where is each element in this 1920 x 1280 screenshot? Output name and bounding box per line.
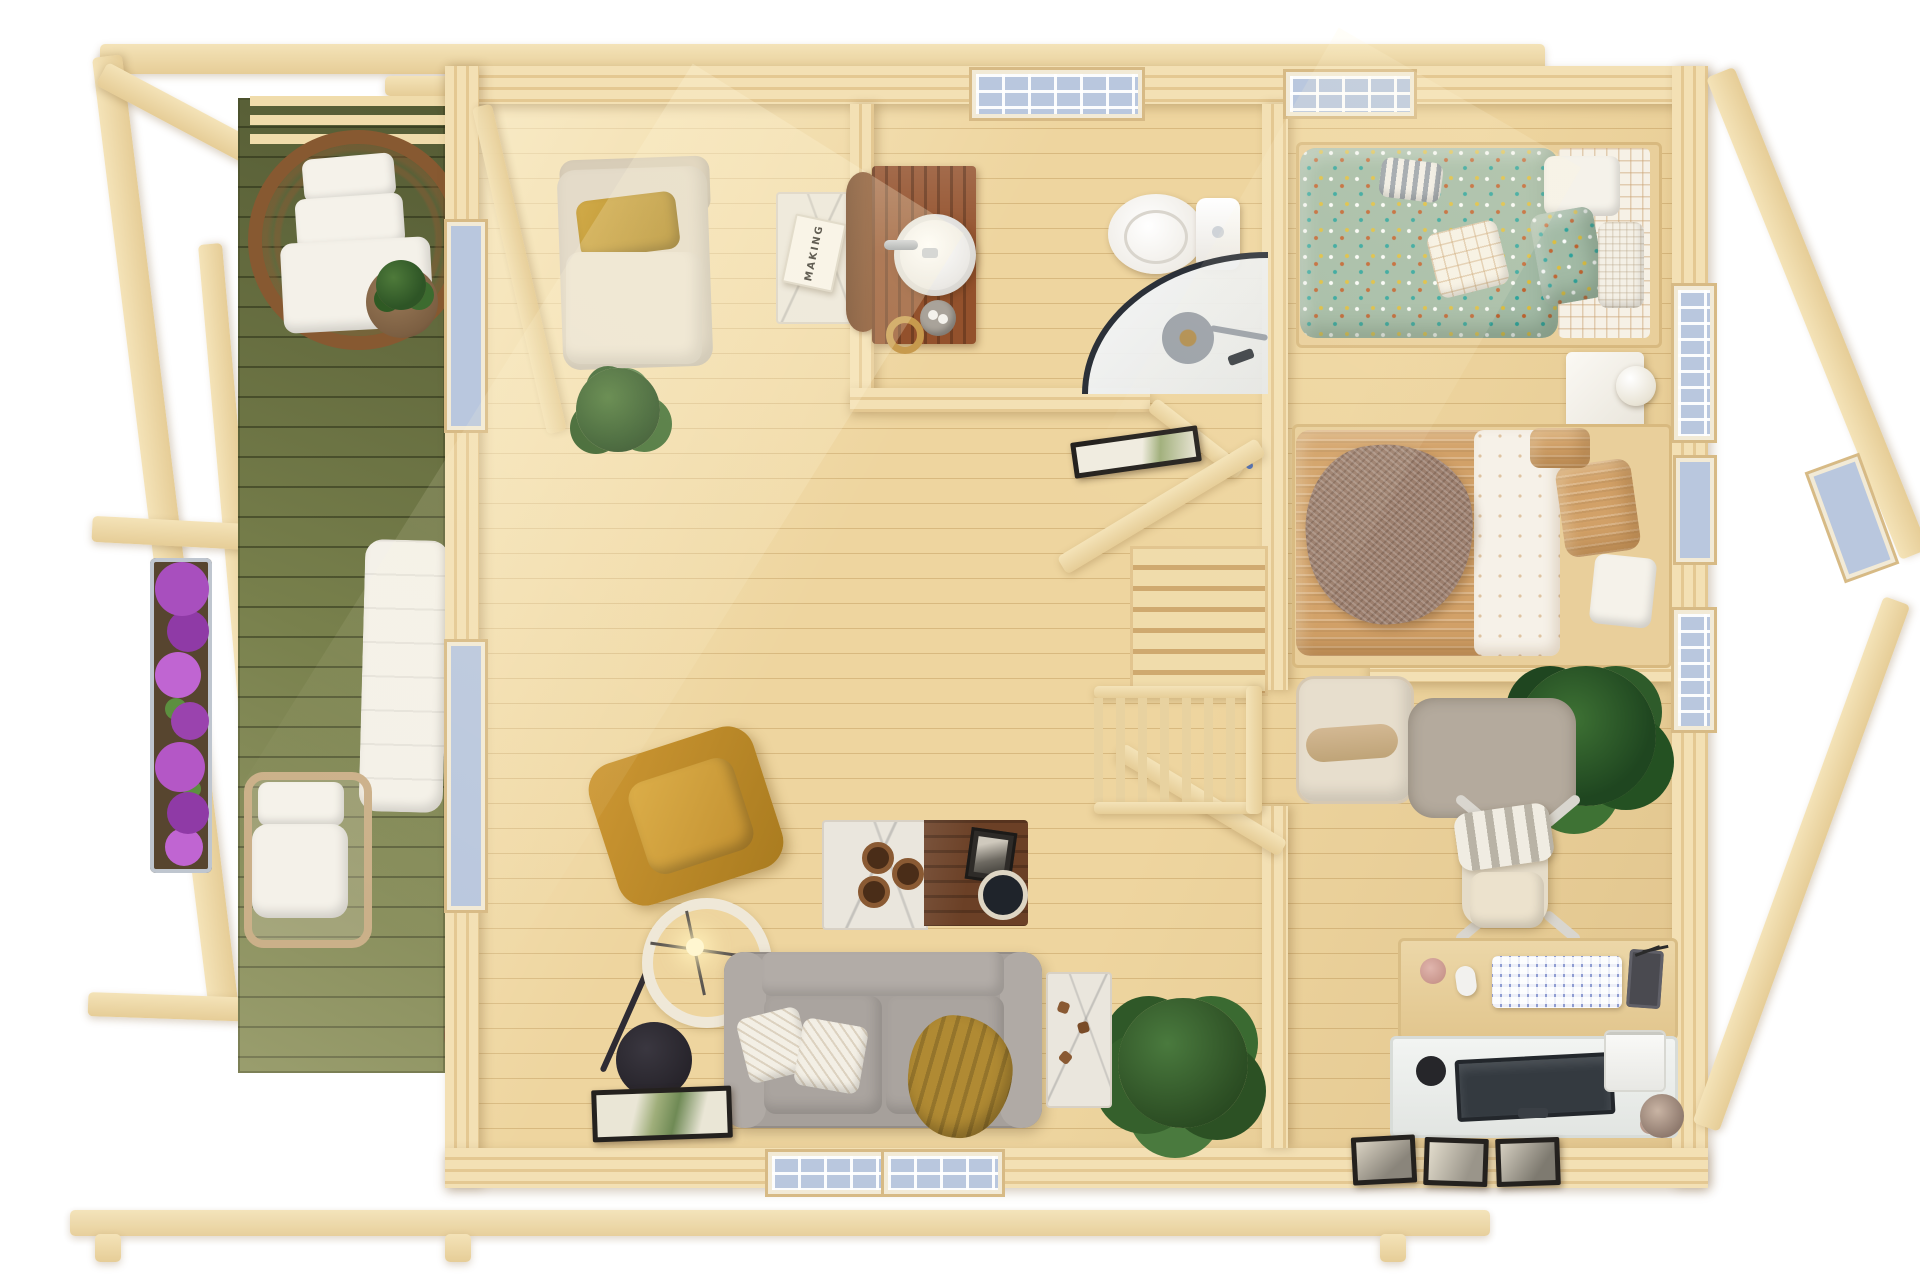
living-plant	[576, 368, 660, 452]
right-wall-window-1	[1674, 286, 1714, 440]
flush-button	[1212, 226, 1224, 238]
monitor-stand	[1518, 1108, 1548, 1118]
stair-newel-post	[1246, 686, 1262, 814]
central-wall-lower	[1262, 806, 1288, 1148]
bench-bolster	[1305, 723, 1399, 763]
foundation-beam	[70, 1210, 1490, 1236]
foundation-post	[445, 1234, 471, 1262]
chaise-seat	[566, 252, 702, 364]
office-floor-mat	[1408, 698, 1576, 818]
bed2-head-pillow	[1530, 428, 1590, 468]
bedroom-top-window	[1286, 72, 1414, 116]
wood-coaster	[892, 858, 924, 890]
marble-console	[1046, 972, 1112, 1108]
front-window-2	[884, 1152, 1002, 1194]
floor-plan-render: MAKING	[0, 0, 1920, 1280]
fiddle-leaf-fig	[1118, 998, 1248, 1128]
sun-lounger	[358, 539, 449, 813]
office-framed-print-1	[1351, 1134, 1417, 1185]
pink-coaster	[1420, 958, 1446, 984]
sink-faucet	[884, 240, 918, 250]
wood-coaster	[862, 842, 894, 874]
stair-rail-top	[1094, 686, 1258, 698]
pergola-low-rail	[88, 992, 259, 1022]
staircase-treads	[1130, 546, 1268, 696]
palm-print-art	[596, 1091, 727, 1138]
sofa-back-cushions	[762, 952, 1004, 996]
left-wall-window-2	[447, 642, 485, 910]
terrace-plant	[376, 260, 426, 310]
dried-flowers	[1640, 1094, 1684, 1138]
bed1-striped-pillow	[1378, 156, 1444, 203]
shower-drain-head	[1162, 312, 1214, 364]
book-title: MAKING	[803, 223, 826, 282]
toilet-seat-ring	[1124, 210, 1188, 264]
rope-armchair-seat	[252, 824, 348, 918]
right-wall-window-2	[1676, 458, 1714, 562]
bed2-caramel-pillow	[1554, 457, 1642, 559]
office-print-art	[1428, 1142, 1483, 1182]
office-print-art	[1500, 1142, 1555, 1182]
rope-armchair-back-cushion	[258, 782, 344, 826]
bed1-waffle-pillow	[1598, 222, 1644, 308]
pen-cup	[1416, 1056, 1446, 1086]
sofa-arm-right	[1000, 952, 1042, 1128]
soap	[928, 310, 938, 320]
towel-ring	[886, 316, 924, 354]
office-framed-print-2	[1423, 1137, 1489, 1187]
sofa-pillow-2	[793, 1017, 870, 1095]
black-bowl	[978, 870, 1028, 920]
purple-petunia-flowers	[155, 562, 209, 616]
office-print-art	[1356, 1140, 1412, 1181]
sink-drain	[922, 248, 938, 258]
right-wall-window-3	[1674, 610, 1714, 730]
front-window-1	[768, 1152, 886, 1194]
table-lamp-1	[1616, 366, 1656, 406]
foundation-post	[95, 1234, 121, 1262]
office-framed-print-3	[1495, 1137, 1561, 1187]
bathroom-window	[972, 70, 1142, 118]
keyboard	[1492, 956, 1622, 1008]
wood-coaster	[858, 876, 890, 908]
stair-balusters	[1094, 698, 1258, 802]
foundation-post	[1380, 1234, 1406, 1262]
stair-rail-bottom	[1094, 802, 1258, 814]
tablet	[1626, 949, 1664, 1009]
right-roof-slope-lower	[1692, 596, 1910, 1132]
soap	[938, 314, 948, 324]
left-wall-window-1	[447, 222, 485, 430]
bed2-white-pillow	[1589, 553, 1658, 629]
chair-cushion	[1470, 872, 1544, 928]
palm-framed-print	[591, 1086, 733, 1143]
printer	[1604, 1030, 1666, 1092]
chaise-mustard-pillow	[575, 190, 681, 260]
lamp-bulb-glow	[686, 938, 704, 956]
